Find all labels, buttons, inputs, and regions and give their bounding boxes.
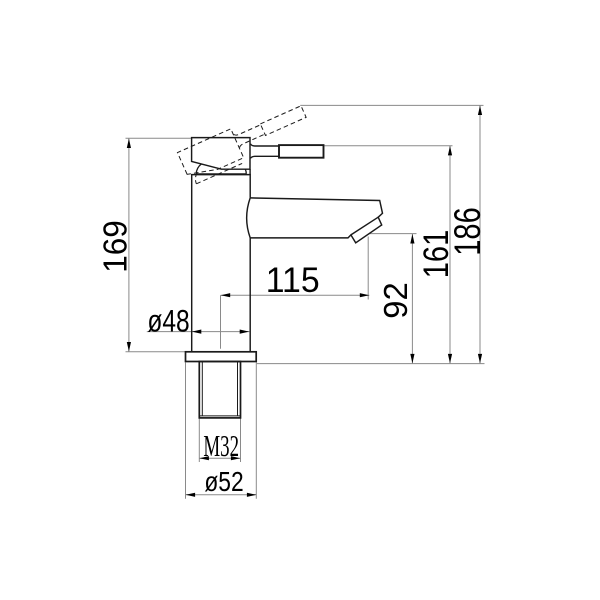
svg-text:M32: M32 (203, 428, 239, 463)
svg-text:115: 115 (266, 261, 320, 300)
svg-text:92: 92 (378, 282, 415, 318)
svg-text:ø48: ø48 (147, 304, 189, 338)
svg-text:186: 186 (448, 207, 489, 255)
svg-text:ø52: ø52 (204, 467, 243, 498)
svg-text:169: 169 (97, 220, 134, 272)
